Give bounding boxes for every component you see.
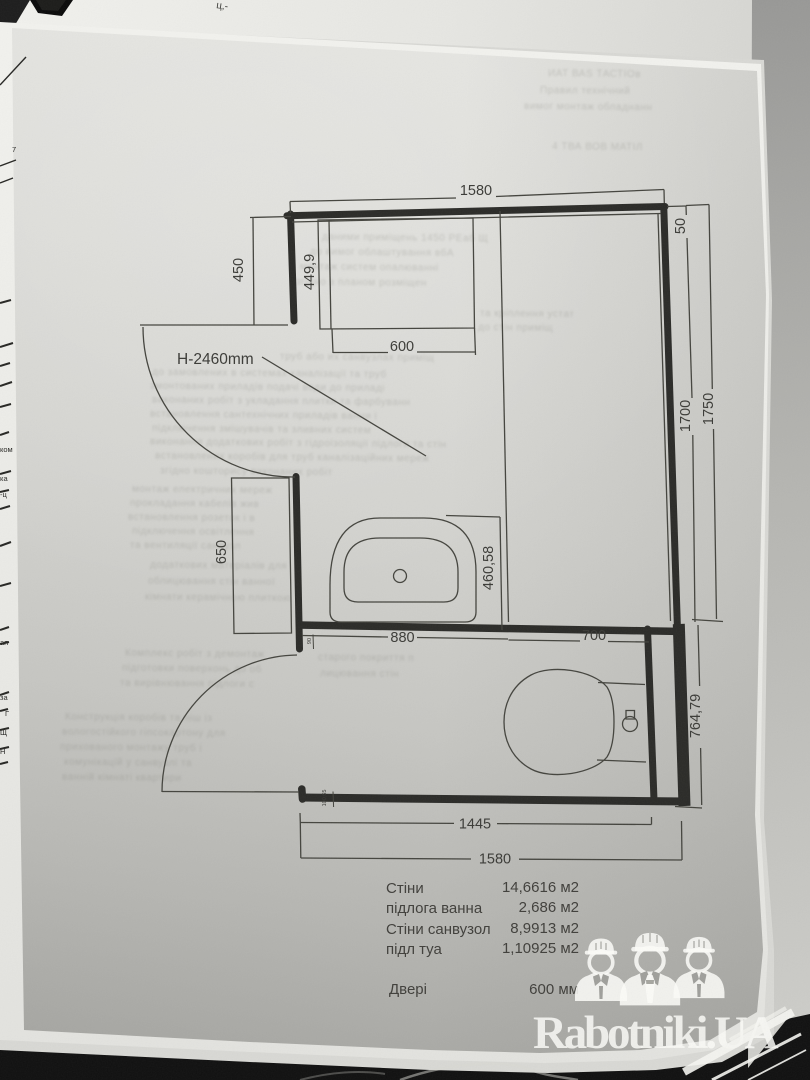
svg-text:за: за: [0, 693, 8, 702]
svg-text:ц,-: ц,-: [216, 0, 229, 13]
svg-text:Г: Г: [5, 709, 9, 718]
svg-text:ком: ком: [0, 445, 13, 454]
svg-text:ап: ап: [0, 638, 8, 647]
svg-text:Щ: Щ: [0, 728, 7, 737]
svg-text:ка: ка: [0, 474, 8, 483]
svg-text:Н: Н: [0, 747, 5, 756]
svg-text:7: 7: [12, 145, 16, 154]
svg-text:-ц: -ц: [0, 490, 7, 499]
